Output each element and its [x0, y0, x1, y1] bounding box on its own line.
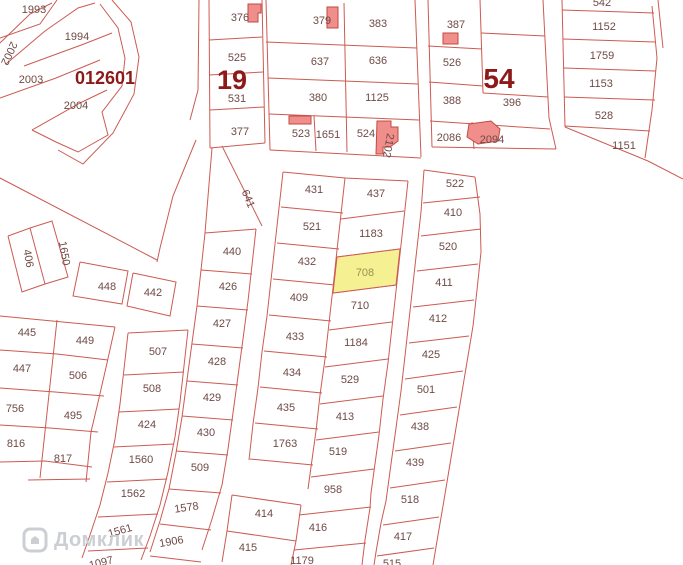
- parcel-label[interactable]: 816: [7, 438, 25, 450]
- parcel-label[interactable]: 445: [18, 327, 36, 339]
- parcel-label[interactable]: 522: [446, 178, 464, 190]
- parcel-boundary: [273, 279, 335, 285]
- parcel-label[interactable]: 501: [417, 384, 435, 396]
- parcel-boundary: [277, 243, 339, 249]
- parcel-label[interactable]: 958: [324, 484, 342, 496]
- parcel-label[interactable]: 1152: [592, 21, 616, 33]
- parcel-label[interactable]: 1650: [56, 240, 72, 266]
- parcel-label[interactable]: 529: [341, 374, 359, 386]
- parcel-boundary: [415, 0, 421, 157]
- parcel-label[interactable]: 426: [219, 281, 237, 293]
- parcel-label[interactable]: 508: [143, 383, 161, 395]
- parcel-boundary: [255, 423, 318, 429]
- parcel-boundary: [325, 359, 388, 367]
- parcel-boundary: [409, 336, 469, 343]
- parcel-boundary: [262, 0, 265, 143]
- parcel-label[interactable]: 1562: [121, 488, 145, 500]
- parcel-boundary: [270, 150, 421, 158]
- parcel-label[interactable]: 2003: [19, 74, 43, 86]
- parcel-label[interactable]: 412: [429, 313, 447, 325]
- parcel-boundary: [209, 37, 262, 40]
- parcel-label[interactable]: 431: [305, 184, 323, 196]
- parcel-boundary: [190, 0, 199, 120]
- parcel-boundary: [160, 524, 211, 530]
- parcel-boundary: [201, 270, 252, 274]
- parcel-label[interactable]: 417: [394, 531, 412, 543]
- parcel-boundary: [268, 78, 418, 84]
- parcel-boundary: [377, 548, 434, 556]
- parcel-boundary: [205, 229, 256, 233]
- parcel-label[interactable]: 525: [228, 52, 246, 64]
- district-label: 54: [483, 63, 515, 94]
- parcel-label[interactable]: 415: [239, 542, 257, 554]
- cadastral-map: 1993199420022003200437652553137737963738…: [0, 0, 683, 565]
- parcel-label[interactable]: 438: [411, 421, 429, 433]
- parcel-boundary: [294, 543, 366, 550]
- parcel-label[interactable]: 2086: [437, 132, 461, 144]
- parcel-label[interactable]: 433: [286, 331, 304, 343]
- parcel-label[interactable]: 756: [6, 403, 24, 415]
- parcel-boundary: [88, 548, 148, 551]
- parcel-label[interactable]: 528: [595, 110, 613, 122]
- parcel-boundary: [205, 148, 212, 233]
- parcel-boundary: [192, 344, 243, 348]
- parcel-boundary: [281, 207, 343, 213]
- parcel-boundary: [564, 97, 655, 100]
- parcel-label[interactable]: 519: [329, 446, 347, 458]
- parcel-label[interactable]: 523: [292, 128, 310, 140]
- parcel-boundary: [429, 82, 483, 86]
- parcel-boundary: [232, 495, 301, 505]
- parcel-boundary: [383, 517, 439, 525]
- parcel-boundary: [260, 387, 322, 393]
- district-label: 012601: [75, 68, 135, 88]
- parcel-boundary: [400, 407, 457, 415]
- parcel-label[interactable]: 1125: [365, 92, 389, 104]
- parcel-label[interactable]: 2004: [64, 100, 88, 112]
- parcel-label[interactable]: 380: [309, 92, 327, 104]
- parcel-label[interactable]: 637: [311, 56, 329, 68]
- parcel-boundary: [320, 396, 383, 404]
- parcel-boundary: [413, 300, 474, 307]
- highlighted-parcel-label[interactable]: 708: [356, 267, 374, 279]
- parcel-fills-layer: [248, 4, 500, 293]
- parcel-boundary: [210, 143, 265, 148]
- parcel-label[interactable]: 410: [444, 207, 462, 219]
- parcel-label[interactable]: 1906: [158, 534, 184, 550]
- parcel-label[interactable]: 437: [367, 188, 385, 200]
- parcel-label[interactable]: 430: [197, 427, 215, 439]
- cadastral-map-viewport: 1993199420022003200437652553137737963738…: [0, 0, 683, 565]
- parcel-boundary: [266, 42, 417, 48]
- parcel-label[interactable]: 524: [357, 128, 375, 140]
- parcel-label[interactable]: 383: [369, 18, 387, 30]
- building-footprint: [289, 116, 311, 124]
- parcel-boundary: [250, 459, 313, 465]
- parcel-label[interactable]: 424: [138, 419, 156, 431]
- parcel-boundary: [202, 229, 256, 550]
- parcel-label[interactable]: 1651: [316, 129, 340, 141]
- parcel-boundary: [264, 351, 327, 357]
- parcel-boundary: [329, 322, 392, 330]
- parcel-boundary: [182, 416, 233, 420]
- parcel-boundary: [562, 10, 654, 13]
- parcel-boundary: [390, 480, 445, 488]
- parcel-label[interactable]: 442: [144, 287, 162, 299]
- parcel-boundary: [645, 6, 657, 158]
- parcel-label[interactable]: 379: [313, 15, 331, 27]
- parcel-label[interactable]: 1763: [273, 438, 297, 450]
- parcel-label[interactable]: 435: [277, 402, 295, 414]
- parcel-label[interactable]: 377: [231, 126, 249, 138]
- parcel-boundary: [209, 0, 210, 148]
- parcel-boundary: [564, 68, 656, 71]
- parcel-label[interactable]: 427: [213, 318, 231, 330]
- parcel-boundary: [432, 147, 556, 149]
- parcel-label[interactable]: 1183: [359, 228, 383, 240]
- parcel-label[interactable]: 425: [422, 349, 440, 361]
- parcel-label[interactable]: 416: [309, 522, 327, 534]
- parcel-label[interactable]: 440: [223, 246, 241, 258]
- parcel-label[interactable]: 636: [369, 55, 387, 67]
- parcel-label[interactable]: 1184: [344, 337, 368, 349]
- parcel-boundary: [210, 107, 264, 110]
- parcel-label[interactable]: 509: [191, 462, 209, 474]
- parcel-boundary: [227, 531, 296, 541]
- parcel-label[interactable]: 2002: [0, 40, 19, 67]
- parcel-boundary: [222, 495, 232, 562]
- parcel-label[interactable]: 710: [351, 300, 369, 312]
- parcel-boundary: [169, 489, 221, 493]
- parcel-label[interactable]: 520: [439, 241, 457, 253]
- parcel-boundary: [124, 372, 184, 375]
- district-label: 19: [217, 65, 247, 95]
- parcel-label[interactable]: 1151: [612, 140, 636, 152]
- parcel-boundary: [428, 46, 482, 49]
- parcel-label[interactable]: 2094: [480, 134, 504, 146]
- parcel-boundary: [0, 178, 157, 260]
- parcel-label[interactable]: 388: [443, 95, 461, 107]
- parcel-label[interactable]: 1994: [65, 31, 89, 43]
- parcel-label[interactable]: 495: [64, 410, 82, 422]
- parcel-label[interactable]: 521: [303, 221, 321, 233]
- parcel-label[interactable]: 434: [283, 367, 301, 379]
- parcel-boundary: [481, 33, 545, 36]
- parcel-boundary: [423, 197, 480, 203]
- parcel-label[interactable]: 387: [447, 19, 465, 31]
- parcel-label[interactable]: 1097: [88, 554, 115, 565]
- parcel-boundary: [395, 443, 451, 451]
- parcel-boundary: [417, 264, 478, 271]
- parcel-label[interactable]: 396: [503, 97, 521, 109]
- parcel-boundary: [0, 388, 104, 396]
- parcel-boundary: [150, 556, 201, 562]
- parcel-label[interactable]: 518: [401, 494, 419, 506]
- parcel-boundary: [283, 172, 408, 181]
- parcel-boundary: [648, 161, 683, 179]
- building-footprint: [248, 4, 261, 22]
- parcel-label[interactable]: 1179: [290, 555, 314, 565]
- parcel-boundary: [299, 507, 371, 515]
- parcel-boundary: [433, 177, 481, 565]
- parcel-boundary: [266, 0, 270, 150]
- parcel-boundary: [197, 306, 248, 310]
- parcel-boundary: [428, 0, 432, 147]
- parcel-boundary: [28, 479, 90, 480]
- parcel-boundary: [98, 514, 158, 517]
- parcel-boundary: [341, 211, 404, 219]
- parcel-label[interactable]: 429: [203, 392, 221, 404]
- parcel-boundary: [107, 479, 167, 482]
- parcel-boundary: [658, 0, 663, 48]
- parcel-boundary: [316, 432, 379, 440]
- parcel-label[interactable]: 409: [290, 292, 308, 304]
- parcel-label[interactable]: 507: [149, 346, 167, 358]
- parcel-boundary: [0, 461, 92, 467]
- parcel-label[interactable]: 411: [435, 277, 453, 289]
- parcel-label[interactable]: 432: [298, 256, 316, 268]
- parcel-boundary: [176, 451, 228, 455]
- parcel-boundary: [119, 409, 179, 412]
- parcel-boundary: [0, 425, 98, 432]
- parcel-boundary: [563, 39, 655, 42]
- parcel-label[interactable]: 542: [593, 0, 611, 9]
- parcel-label[interactable]: 439: [406, 457, 424, 469]
- parcel-label[interactable]: 817: [54, 453, 72, 465]
- parcel-boundary: [562, 0, 565, 127]
- parcel-boundary: [0, 316, 115, 327]
- parcel-boundary: [543, 0, 556, 149]
- parcel-boundary: [157, 140, 196, 262]
- parcel-label[interactable]: 1759: [590, 50, 614, 62]
- parcel-label[interactable]: 448: [98, 281, 116, 293]
- parcel-label[interactable]: 1560: [129, 454, 153, 466]
- parcel-label[interactable]: 1578: [174, 500, 200, 515]
- parcel-boundary: [187, 381, 238, 385]
- parcel-boundary: [269, 315, 331, 321]
- parcel-boundary: [344, 3, 347, 152]
- parcel-label[interactable]: 414: [255, 508, 273, 520]
- parcel-label[interactable]: 406: [20, 248, 35, 268]
- parcel-boundary: [222, 146, 262, 226]
- parcel-label[interactable]: 413: [336, 411, 354, 423]
- parcel-label[interactable]: 1153: [589, 78, 613, 90]
- parcel-label[interactable]: 506: [69, 370, 87, 382]
- parcel-label[interactable]: 428: [208, 356, 226, 368]
- parcel-boundary: [128, 330, 188, 333]
- parcel-label[interactable]: 449: [76, 335, 94, 347]
- parcel-label[interactable]: 526: [443, 57, 461, 69]
- parcel-boundary: [424, 170, 475, 177]
- parcel-boundary: [421, 229, 481, 236]
- parcel-label[interactable]: 376: [231, 12, 249, 24]
- parcel-label[interactable]: 641: [239, 188, 257, 210]
- parcel-boundary: [311, 469, 374, 477]
- building-footprint: [443, 33, 458, 44]
- parcel-boundary: [114, 444, 174, 447]
- parcel-label[interactable]: 1993: [22, 4, 46, 16]
- parcel-label[interactable]: 447: [13, 363, 31, 375]
- parcel-boundary: [405, 371, 463, 379]
- parcel-label[interactable]: 1561: [107, 522, 134, 540]
- parcel-label[interactable]: 515: [383, 558, 401, 565]
- parcel-boundary: [565, 126, 650, 131]
